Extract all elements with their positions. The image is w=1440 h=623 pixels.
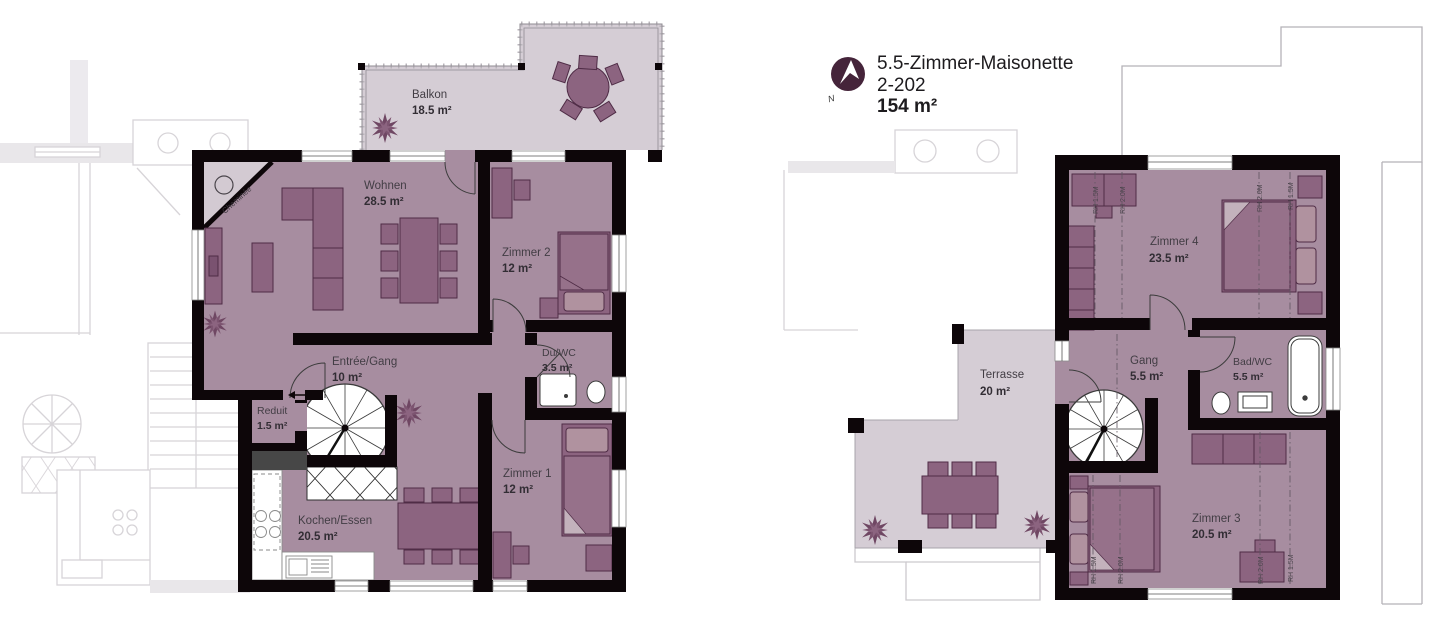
page-title: 5.5-Zimmer-Maisonette [877, 53, 1073, 74]
sofa-body-icon [313, 188, 343, 310]
nightstand-icon [1070, 476, 1088, 489]
room-label-zimmer3-area: 20.5 m² [1192, 529, 1232, 541]
room-label-zimmer4-area: 23.5 m² [1149, 253, 1189, 265]
room-label-zimmer2-area: 12 m² [502, 263, 532, 275]
room-label-kochen-area: 20.5 m² [298, 531, 338, 543]
rh-label: RH 2.0M [1257, 184, 1264, 212]
rh-label: RH 2.0M [1258, 556, 1265, 584]
total-area: 154 m² [877, 96, 937, 117]
room-label-wohnen-name: Wohnen [364, 180, 407, 192]
nightstand-icon [1070, 572, 1088, 585]
shower-icon [564, 394, 568, 398]
unit-number: 2-202 [877, 75, 926, 96]
room-label-reduit-area: 1.5 m² [257, 420, 288, 432]
room-label-entree-name: Entrée/Gang [332, 356, 397, 368]
room-label-gang-area: 5.5 m² [1130, 371, 1163, 383]
room-label-zimmer4-name: Zimmer 4 [1150, 236, 1199, 248]
dresser-icon [586, 545, 612, 571]
desk-icon [492, 168, 512, 218]
wardrobe-icon [1192, 434, 1286, 464]
balcony-door-gap [445, 150, 475, 162]
room-label-duwc-area: 3.5 m² [542, 362, 573, 374]
dining-table-icon [400, 218, 438, 303]
stool-icon [540, 298, 558, 318]
room-label-terrasse-area: 20 m² [980, 386, 1010, 398]
shaft [252, 451, 307, 470]
rh-label: RH 1.5M [1091, 556, 1098, 584]
room-label-zimmer1-area: 12 m² [503, 484, 533, 496]
kitchen-table-icon [398, 488, 480, 564]
room-label-badwc-name: Bad/WC [1233, 356, 1273, 368]
room-label-zimmer3-name: Zimmer 3 [1192, 513, 1241, 525]
rh-label: RH 2.0M [1118, 556, 1125, 584]
wardrobe-icon [1068, 226, 1094, 330]
room-label-gang-name: Gang [1130, 355, 1158, 367]
coffee-table-icon [252, 243, 273, 292]
floorplan-drawing: Balkon 18.5 m² Wohnen 28.5 m² Zimmer 2 1… [0, 0, 1440, 623]
nightstand-icon [1298, 176, 1322, 198]
rh-label: RH 2.0M [1120, 186, 1127, 214]
room-label-zimmer2-name: Zimmer 2 [502, 247, 551, 259]
room-label-wohnen-area: 28.5 m² [364, 196, 404, 208]
room-label-entree-area: 10 m² [332, 372, 362, 384]
room-label-terrasse-name: Terrasse [980, 369, 1024, 381]
stove-icon [256, 511, 267, 522]
nightstand-icon [1298, 292, 1322, 314]
desk-icon [493, 532, 511, 578]
room-label-reduit-name: Reduit [257, 405, 287, 417]
rh-label: RH 1.5M [1288, 182, 1295, 210]
room-label-kochen-name: Kochen/Essen [298, 515, 372, 527]
reduit-door-gap [295, 403, 307, 431]
understair-storage [307, 467, 397, 500]
room-label-balkon-name: Balkon [412, 89, 447, 101]
toilet-icon [1212, 392, 1230, 414]
rh-label: RH 1.5M [1093, 186, 1100, 214]
room-label-badwc-area: 5.5 m² [1233, 371, 1264, 383]
room-label-zimmer1-name: Zimmer 1 [503, 468, 552, 480]
sink-icon [587, 381, 605, 403]
room-label-duwc-name: Du/WC [542, 347, 576, 359]
terrace-door-gap [1055, 361, 1069, 404]
rh-label: RH 1.5M [1288, 554, 1295, 582]
terrace-table-icon [922, 462, 998, 528]
floorplan-page: Balkon 18.5 m² Wohnen 28.5 m² Zimmer 2 1… [0, 0, 1440, 623]
room-label-balkon-area: 18.5 m² [412, 105, 452, 117]
